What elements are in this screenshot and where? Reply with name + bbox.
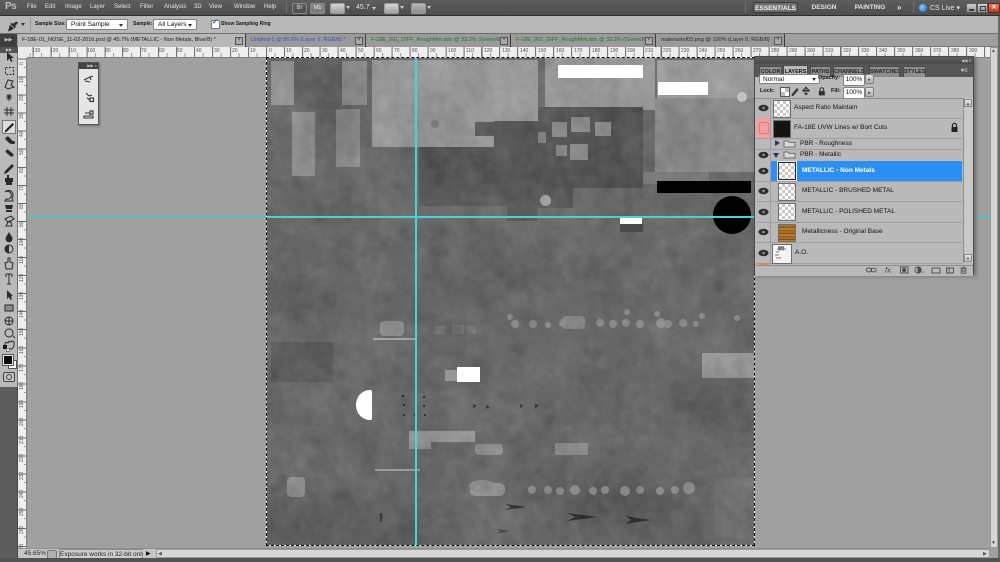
svg-text:fx.: fx.	[885, 268, 892, 275]
